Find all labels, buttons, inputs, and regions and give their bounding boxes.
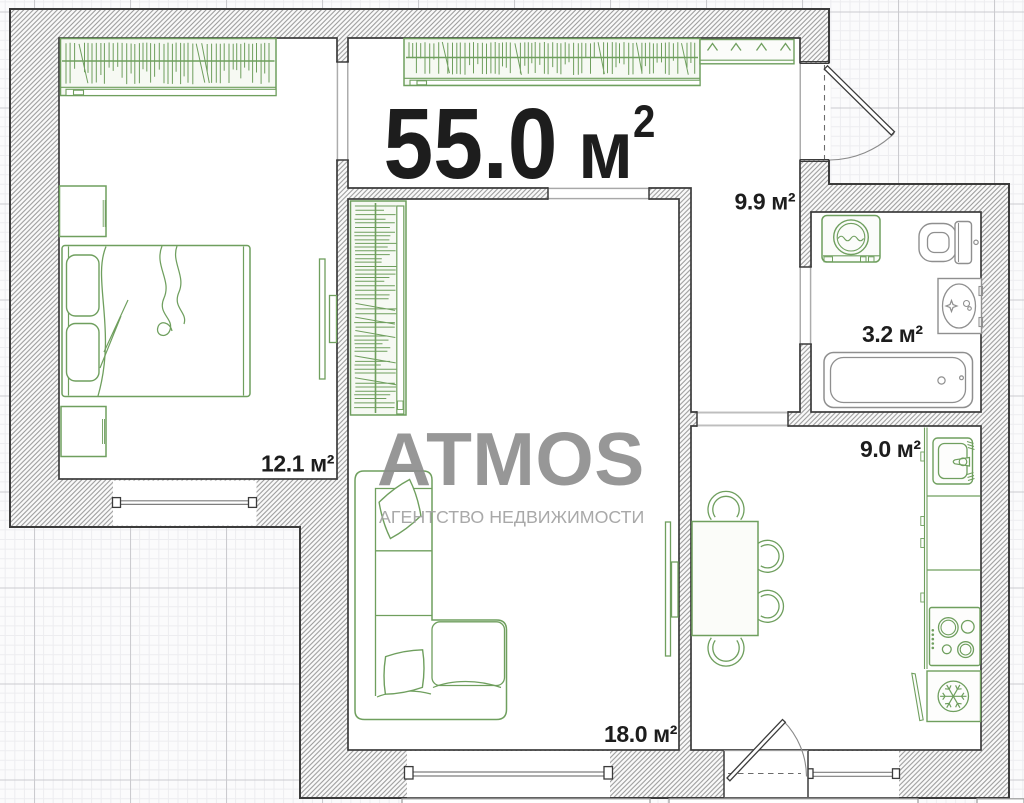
svg-text:9.9 м²: 9.9 м² (735, 189, 796, 215)
svg-text:18.0 м²: 18.0 м² (604, 721, 678, 747)
svg-text:3.2 м²: 3.2 м² (862, 321, 923, 347)
svg-text:ATMOS: ATMOS (377, 417, 645, 501)
svg-text:АГЕНТСТВО НЕДВИЖИМОСТИ: АГЕНТСТВО НЕДВИЖИМОСТИ (379, 507, 644, 527)
svg-text:12.1 м²: 12.1 м² (261, 450, 335, 476)
svg-text:55.0 м2: 55.0 м2 (384, 88, 656, 200)
svg-text:9.0 м²: 9.0 м² (860, 436, 921, 462)
